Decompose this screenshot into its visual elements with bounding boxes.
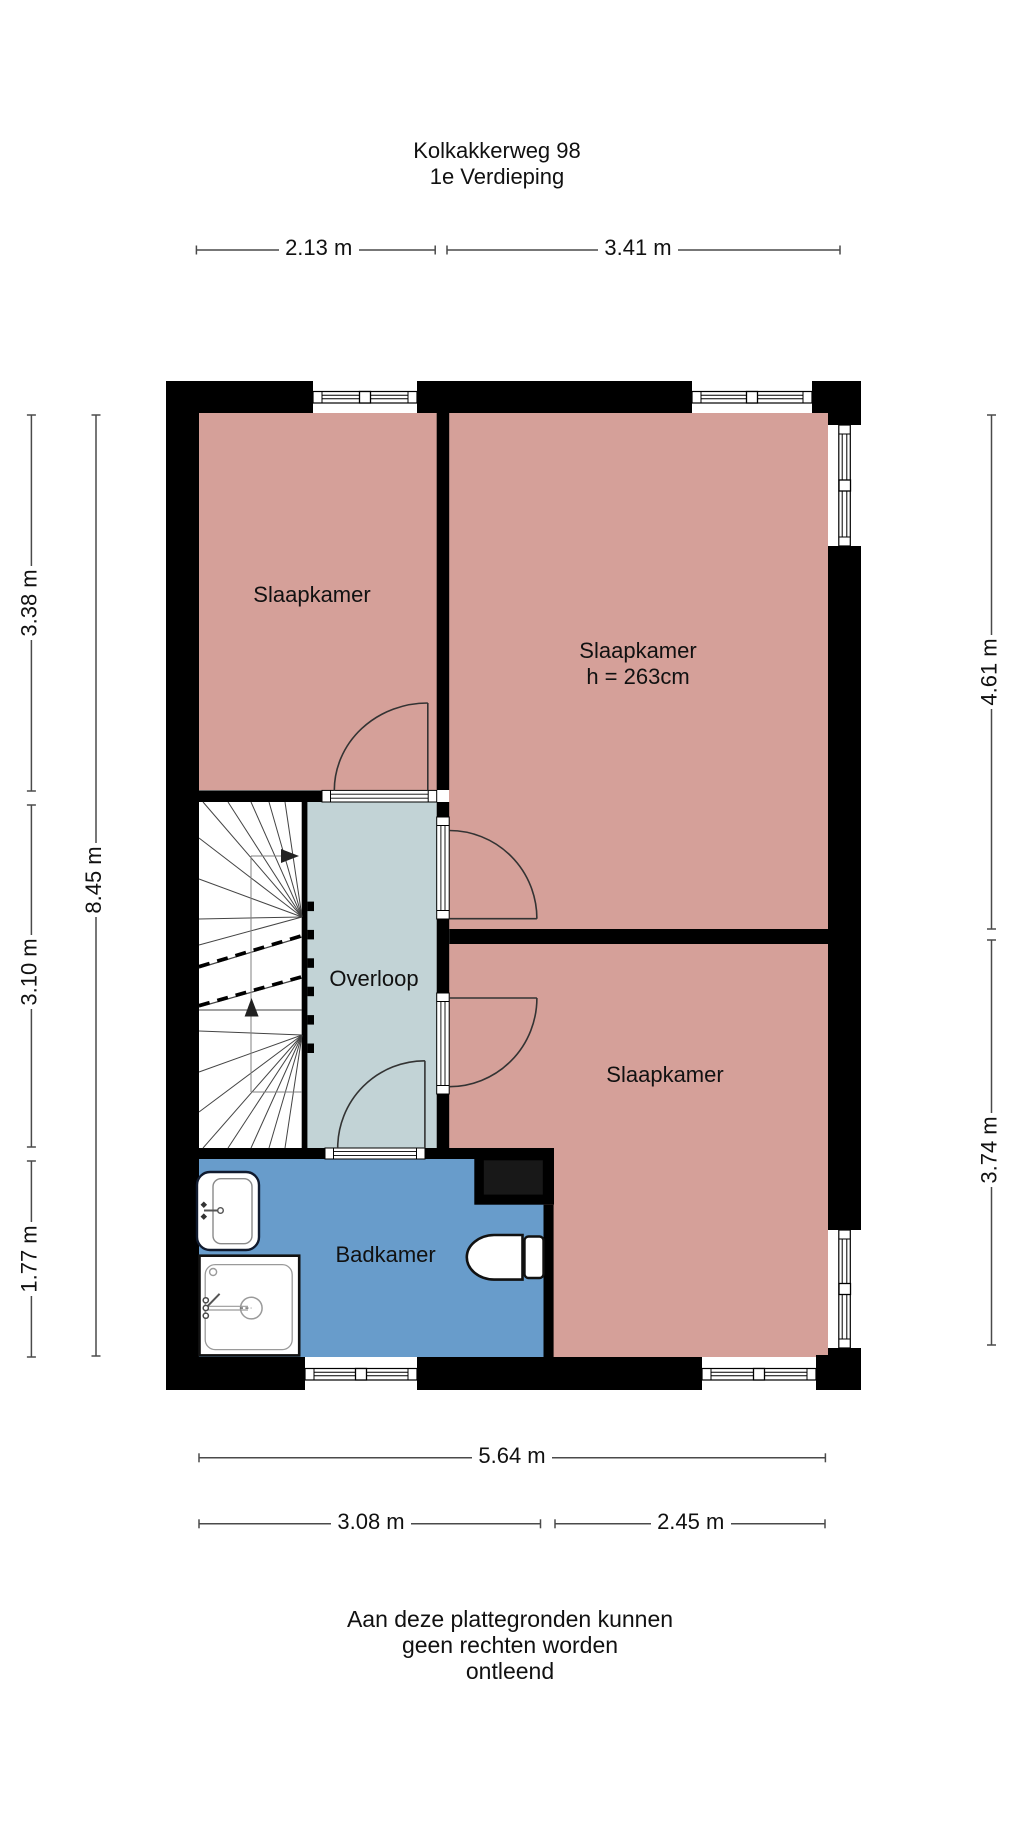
svg-text:h = 263cm: h = 263cm: [586, 664, 689, 689]
svg-text:1e Verdieping: 1e Verdieping: [430, 164, 565, 189]
svg-text:Slaapkamer: Slaapkamer: [579, 638, 696, 663]
svg-text:8.45 m: 8.45 m: [81, 846, 106, 913]
svg-text:Slaapkamer: Slaapkamer: [606, 1062, 723, 1087]
svg-text:4.61 m: 4.61 m: [977, 638, 1002, 705]
svg-text:Kolkakkerweg 98: Kolkakkerweg 98: [413, 138, 581, 163]
svg-text:Aan deze plattegronden kunnen: Aan deze plattegronden kunnen: [347, 1606, 673, 1632]
svg-text:Badkamer: Badkamer: [335, 1242, 435, 1267]
svg-text:3.41 m: 3.41 m: [604, 235, 671, 260]
svg-text:ontleend: ontleend: [466, 1658, 554, 1684]
svg-text:2.13 m: 2.13 m: [285, 235, 352, 260]
svg-text:2.45 m: 2.45 m: [657, 1509, 724, 1534]
svg-text:1.77 m: 1.77 m: [16, 1225, 41, 1292]
svg-text:geen rechten worden: geen rechten worden: [402, 1632, 618, 1658]
svg-text:3.38 m: 3.38 m: [16, 569, 41, 636]
svg-text:Slaapkamer: Slaapkamer: [253, 582, 370, 607]
svg-text:Overloop: Overloop: [329, 966, 418, 991]
svg-text:5.64 m: 5.64 m: [478, 1443, 545, 1468]
svg-text:3.10 m: 3.10 m: [16, 938, 41, 1005]
svg-text:3.74 m: 3.74 m: [977, 1116, 1002, 1183]
svg-text:3.08 m: 3.08 m: [337, 1509, 404, 1534]
